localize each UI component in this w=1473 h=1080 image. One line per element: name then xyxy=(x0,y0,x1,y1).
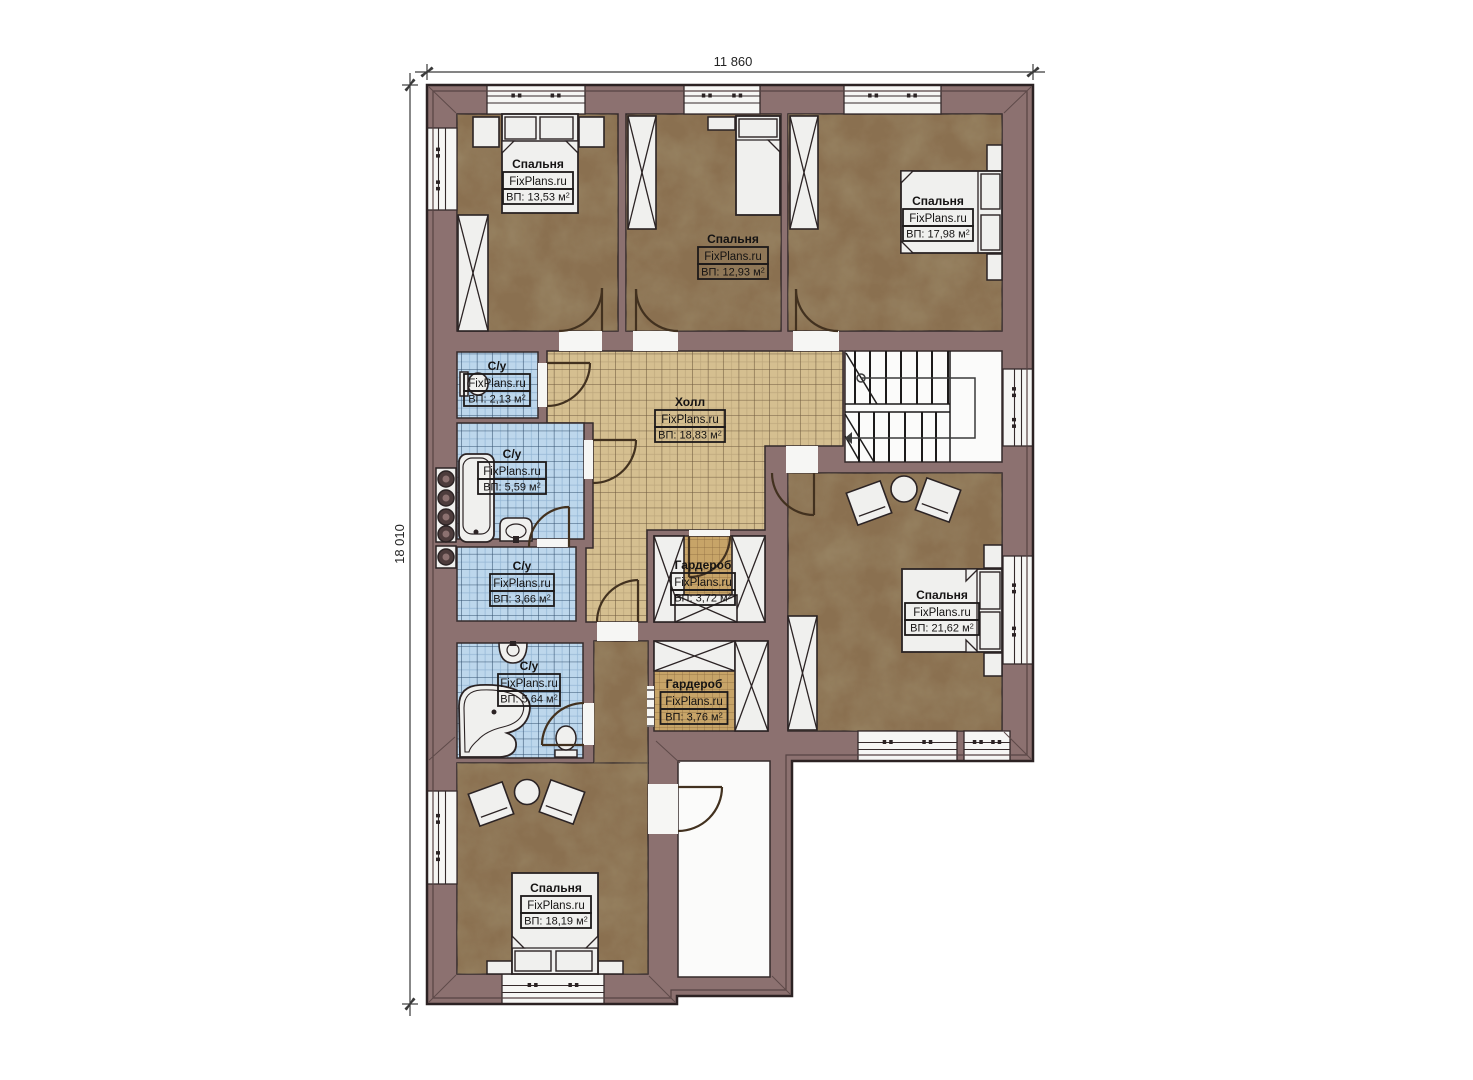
svg-text:FixPlans.ru: FixPlans.ru xyxy=(509,176,567,188)
svg-text:FixPlans.ru: FixPlans.ru xyxy=(468,378,526,390)
svg-text:Гардероб: Гардероб xyxy=(675,558,732,572)
svg-text:FixPlans.ru: FixPlans.ru xyxy=(913,607,971,619)
svg-text:ВП: 12,93 м2: ВП: 12,93 м2 xyxy=(701,266,765,279)
svg-text:ВП: 3,72 м2: ВП: 3,72 м2 xyxy=(674,592,732,605)
svg-text:ВП: 13,53 м2: ВП: 13,53 м2 xyxy=(506,191,570,204)
svg-text:С/у: С/у xyxy=(503,447,522,461)
svg-text:Спальня: Спальня xyxy=(530,881,582,895)
svg-text:ВП: 5,64 м2: ВП: 5,64 м2 xyxy=(500,693,558,706)
svg-text:Спальня: Спальня xyxy=(912,194,964,208)
svg-text:ВП: 18,19 м2: ВП: 18,19 м2 xyxy=(524,915,588,928)
svg-text:С/у: С/у xyxy=(513,559,532,573)
svg-text:11 860: 11 860 xyxy=(714,54,753,69)
svg-text:18 010: 18 010 xyxy=(392,524,407,564)
svg-text:С/у: С/у xyxy=(488,359,507,373)
svg-text:FixPlans.ru: FixPlans.ru xyxy=(704,251,762,263)
svg-text:Холл: Холл xyxy=(675,395,705,409)
svg-text:FixPlans.ru: FixPlans.ru xyxy=(674,577,732,589)
svg-text:ВП: 2,13 м2: ВП: 2,13 м2 xyxy=(468,393,526,406)
svg-text:FixPlans.ru: FixPlans.ru xyxy=(527,900,585,912)
svg-text:ВП: 21,62 м2: ВП: 21,62 м2 xyxy=(910,622,974,635)
svg-text:FixPlans.ru: FixPlans.ru xyxy=(483,466,541,478)
svg-text:ВП: 17,98 м2: ВП: 17,98 м2 xyxy=(906,228,970,241)
svg-text:FixPlans.ru: FixPlans.ru xyxy=(661,414,719,426)
svg-text:Спальня: Спальня xyxy=(916,588,968,602)
svg-text:ВП: 18,83 м2: ВП: 18,83 м2 xyxy=(658,429,722,442)
svg-text:ВП: 3,66 м2: ВП: 3,66 м2 xyxy=(493,593,551,606)
svg-text:Гардероб: Гардероб xyxy=(666,677,723,691)
svg-text:ВП: 3,76 м2: ВП: 3,76 м2 xyxy=(665,711,723,724)
svg-text:Спальня: Спальня xyxy=(512,157,564,171)
svg-text:ВП: 5,59 м2: ВП: 5,59 м2 xyxy=(483,481,541,494)
svg-text:FixPlans.ru: FixPlans.ru xyxy=(909,213,967,225)
svg-text:FixPlans.ru: FixPlans.ru xyxy=(493,578,551,590)
svg-text:FixPlans.ru: FixPlans.ru xyxy=(665,696,723,708)
svg-text:FixPlans.ru: FixPlans.ru xyxy=(500,678,558,690)
svg-text:Спальня: Спальня xyxy=(707,232,759,246)
svg-text:С/у: С/у xyxy=(520,659,539,673)
